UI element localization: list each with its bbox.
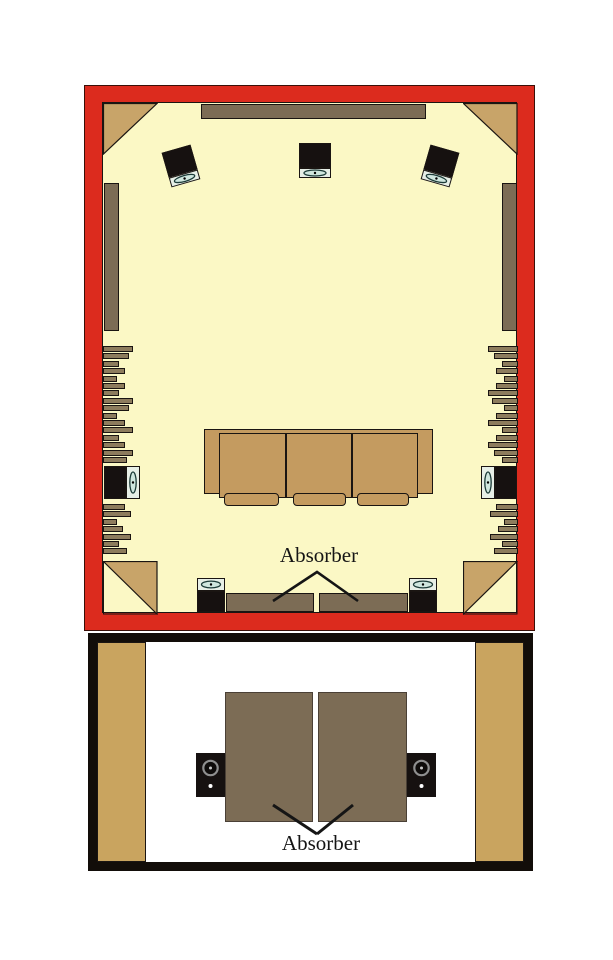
rear-right-speaker <box>409 578 437 612</box>
speaker-woofer-icon <box>407 753 436 797</box>
diffuser-strip <box>103 526 123 532</box>
diffuser-strip <box>103 398 133 404</box>
sofa-front-cushion <box>224 493 279 506</box>
diffuser-strip <box>504 376 518 382</box>
speaker-woofer-icon <box>196 753 225 797</box>
front-view-room-frame: Absorber <box>88 633 533 871</box>
front-right-speaker <box>421 145 460 188</box>
front-absorber-callout-lines <box>268 800 358 838</box>
rear-left-speaker <box>197 578 225 612</box>
diffuser-strip <box>103 541 119 547</box>
left-surround-speaker <box>104 466 140 499</box>
diffuser-strip <box>494 548 518 554</box>
diffuser-strip <box>502 541 518 547</box>
diffuser-strip <box>103 346 133 352</box>
diffuser-strip <box>103 435 119 441</box>
diffuser-strip <box>490 534 518 540</box>
front-wall-absorber-panel <box>201 104 426 119</box>
center-speaker <box>299 143 331 178</box>
diffuser-strip <box>488 420 518 426</box>
diffuser-strip <box>103 504 125 510</box>
right-corner-bass-trap-column <box>475 642 524 862</box>
plan-absorber-label: Absorber <box>249 544 389 566</box>
plan-absorber-callout-lines <box>268 568 363 606</box>
sofa-seat <box>352 433 418 498</box>
diffuser-strip <box>488 390 518 396</box>
sofa-front-cushion <box>293 493 346 506</box>
acoustic-room-treatment-diagram: Absorber <box>0 0 613 960</box>
diffuser-strip <box>103 534 131 540</box>
diffuser-strip <box>103 511 131 517</box>
diffuser-strip <box>103 361 119 367</box>
diffuser-strip <box>103 442 125 448</box>
corner-bass-trap-top-left-icon <box>103 103 158 155</box>
speaker-driver-icon <box>127 467 139 498</box>
diffuser-strip <box>103 376 117 382</box>
left-wall-diffuser-upper <box>103 346 135 465</box>
front-view-right-speaker <box>407 753 436 797</box>
diffuser-strip <box>490 511 518 517</box>
corner-bass-trap-top-right-icon <box>463 103 518 155</box>
front-view-left-speaker <box>196 753 225 797</box>
left-corner-bass-trap-column <box>97 642 146 862</box>
left-wall-diffuser-lower <box>103 504 135 556</box>
right-wall-diffuser-lower <box>486 504 518 556</box>
diffuser-strip <box>103 405 129 411</box>
sofa-front-cushion <box>357 493 409 506</box>
front-left-speaker <box>162 145 201 188</box>
speaker-driver-icon <box>198 579 224 590</box>
diffuser-strip <box>494 353 518 359</box>
diffuser-strip <box>502 427 518 433</box>
corner-bass-trap-bottom-right-icon <box>463 561 518 615</box>
right-wall-absorber-panel <box>502 183 517 331</box>
diffuser-strip <box>103 383 125 389</box>
diffuser-strip <box>504 519 518 525</box>
diffuser-strip <box>103 390 119 396</box>
diffuser-strip <box>103 450 133 456</box>
left-wall-absorber-panel <box>104 183 119 331</box>
speaker-driver-icon <box>482 467 494 498</box>
diffuser-strip <box>103 353 129 359</box>
diffuser-strip <box>492 398 518 404</box>
diffuser-strip <box>103 519 117 525</box>
sofa-seat <box>286 433 352 498</box>
right-surround-speaker <box>481 466 517 499</box>
diffuser-strip <box>502 361 518 367</box>
diffuser-strip <box>103 457 127 463</box>
corner-bass-trap-bottom-left-icon <box>103 561 158 615</box>
plan-view-room-walls: Absorber <box>84 85 535 631</box>
diffuser-strip <box>496 413 518 419</box>
diffuser-strip <box>504 405 518 411</box>
diffuser-strip <box>488 346 518 352</box>
diffuser-strip <box>103 427 133 433</box>
diffuser-strip <box>496 504 518 510</box>
diffuser-strip <box>496 383 518 389</box>
diffuser-strip <box>103 420 125 426</box>
diffuser-strip <box>502 457 518 463</box>
sofa-seat <box>219 433 286 498</box>
diffuser-strip <box>103 548 127 554</box>
right-wall-diffuser-upper <box>486 346 518 465</box>
diffuser-strip <box>494 450 518 456</box>
plan-view-floor: Absorber <box>102 102 517 613</box>
front-view-interior: Absorber <box>97 642 524 862</box>
speaker-driver-icon <box>410 579 436 590</box>
diffuser-strip <box>498 526 518 532</box>
diffuser-strip <box>488 442 518 448</box>
diffuser-strip <box>103 368 125 374</box>
diffuser-strip <box>496 435 518 441</box>
diffuser-strip <box>496 368 518 374</box>
speaker-driver-icon <box>300 169 330 177</box>
diffuser-strip <box>103 413 117 419</box>
